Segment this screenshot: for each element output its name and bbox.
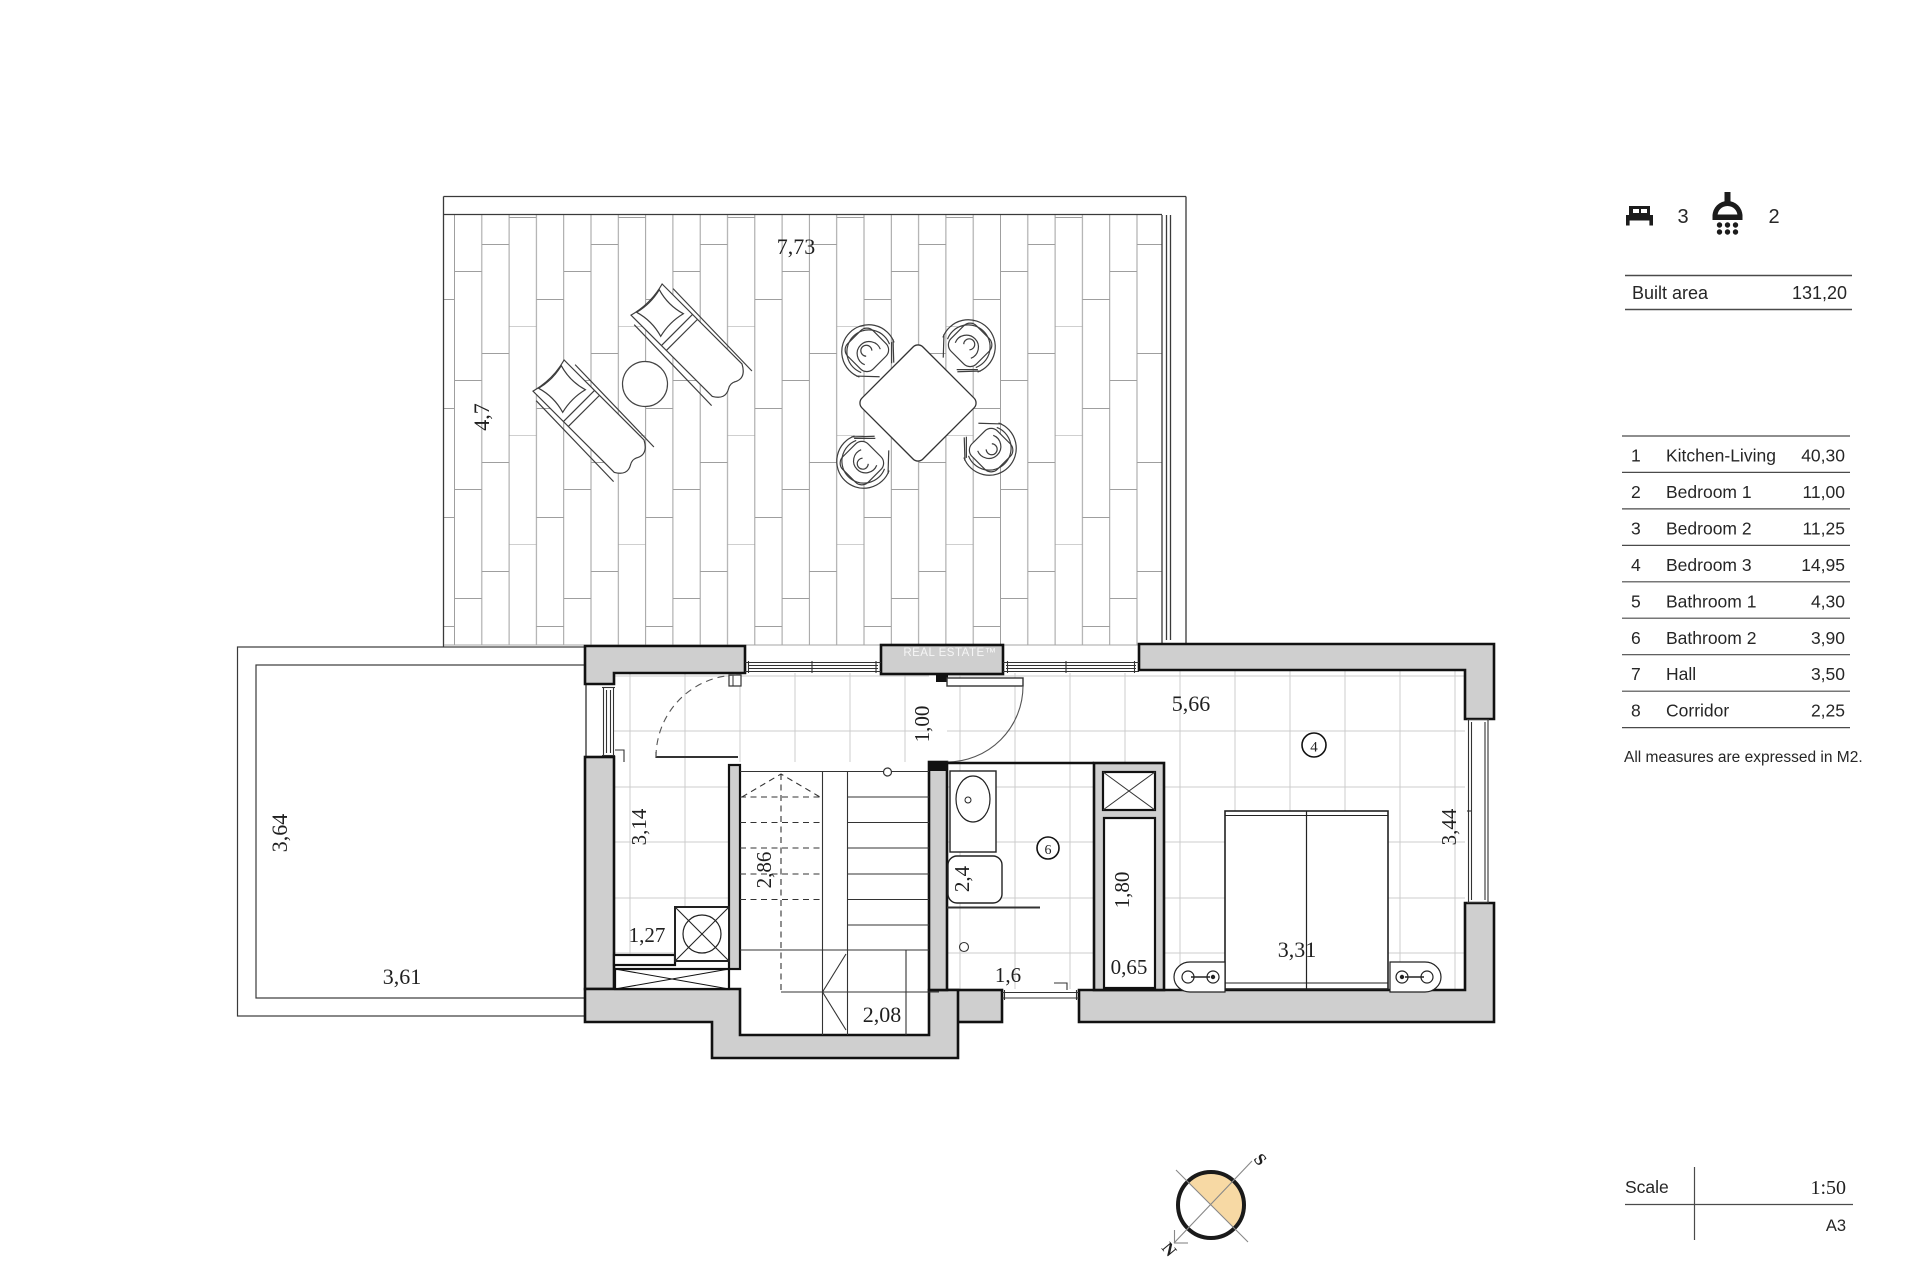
svg-text:2,08: 2,08: [863, 1002, 902, 1027]
svg-text:Hall: Hall: [1666, 664, 1696, 684]
svg-text:6: 6: [1045, 843, 1052, 858]
svg-text:14,95: 14,95: [1801, 555, 1845, 575]
svg-text:4,7: 4,7: [469, 403, 494, 431]
svg-text:3,90: 3,90: [1811, 628, 1845, 648]
svg-text:3,14: 3,14: [627, 808, 651, 845]
svg-text:5,66: 5,66: [1172, 691, 1211, 716]
svg-text:5: 5: [1631, 591, 1641, 611]
svg-text:3,44: 3,44: [1437, 808, 1461, 845]
svg-text:Bathroom 1: Bathroom 1: [1666, 591, 1756, 611]
svg-text:131,20: 131,20: [1792, 283, 1847, 303]
svg-text:1,00: 1,00: [910, 706, 934, 743]
svg-text:All measures are expressed in: All measures are expressed in M2.: [1624, 749, 1863, 766]
svg-text:Bedroom 2: Bedroom 2: [1666, 518, 1752, 538]
svg-text:1,6: 1,6: [995, 963, 1021, 987]
svg-text:3: 3: [1631, 518, 1641, 538]
svg-text:3,61: 3,61: [383, 964, 422, 989]
svg-text:40,30: 40,30: [1801, 446, 1845, 466]
svg-text:2: 2: [1631, 482, 1641, 502]
svg-text:REAL ESTATE™: REAL ESTATE™: [903, 647, 996, 659]
svg-text:1,27: 1,27: [629, 923, 666, 947]
svg-text:0,65: 0,65: [1111, 955, 1148, 979]
svg-text:7,73: 7,73: [777, 234, 816, 259]
svg-text:2,25: 2,25: [1811, 701, 1845, 721]
svg-text:A3: A3: [1826, 1217, 1846, 1235]
svg-text:8: 8: [1631, 701, 1641, 721]
svg-text:6: 6: [1631, 628, 1641, 648]
svg-text:4: 4: [1310, 740, 1318, 756]
svg-text:Bathroom 2: Bathroom 2: [1666, 628, 1756, 648]
svg-text:11,00: 11,00: [1803, 482, 1846, 502]
svg-text:3: 3: [1677, 206, 1688, 228]
svg-text:4,30: 4,30: [1811, 591, 1845, 611]
svg-text:Bedroom 1: Bedroom 1: [1666, 482, 1752, 502]
svg-text:11,25: 11,25: [1803, 518, 1846, 538]
svg-text:Scale: Scale: [1625, 1177, 1669, 1197]
svg-text:3,31: 3,31: [1278, 937, 1317, 962]
svg-text:3,64: 3,64: [267, 814, 292, 853]
svg-text:Kitchen-Living: Kitchen-Living: [1666, 446, 1776, 466]
svg-text:1: 1: [1631, 446, 1641, 466]
svg-text:2,4: 2,4: [950, 865, 974, 892]
svg-text:3,50: 3,50: [1811, 664, 1845, 684]
svg-text:Built area: Built area: [1632, 283, 1709, 303]
svg-text:Corridor: Corridor: [1666, 701, 1729, 721]
svg-text:1:50: 1:50: [1810, 1177, 1846, 1199]
svg-text:Bedroom 3: Bedroom 3: [1666, 555, 1752, 575]
svg-text:1,80: 1,80: [1110, 872, 1134, 909]
svg-text:2: 2: [1768, 206, 1779, 228]
svg-text:2,86: 2,86: [752, 852, 776, 889]
svg-text:4: 4: [1631, 555, 1641, 575]
svg-text:7: 7: [1631, 664, 1641, 684]
